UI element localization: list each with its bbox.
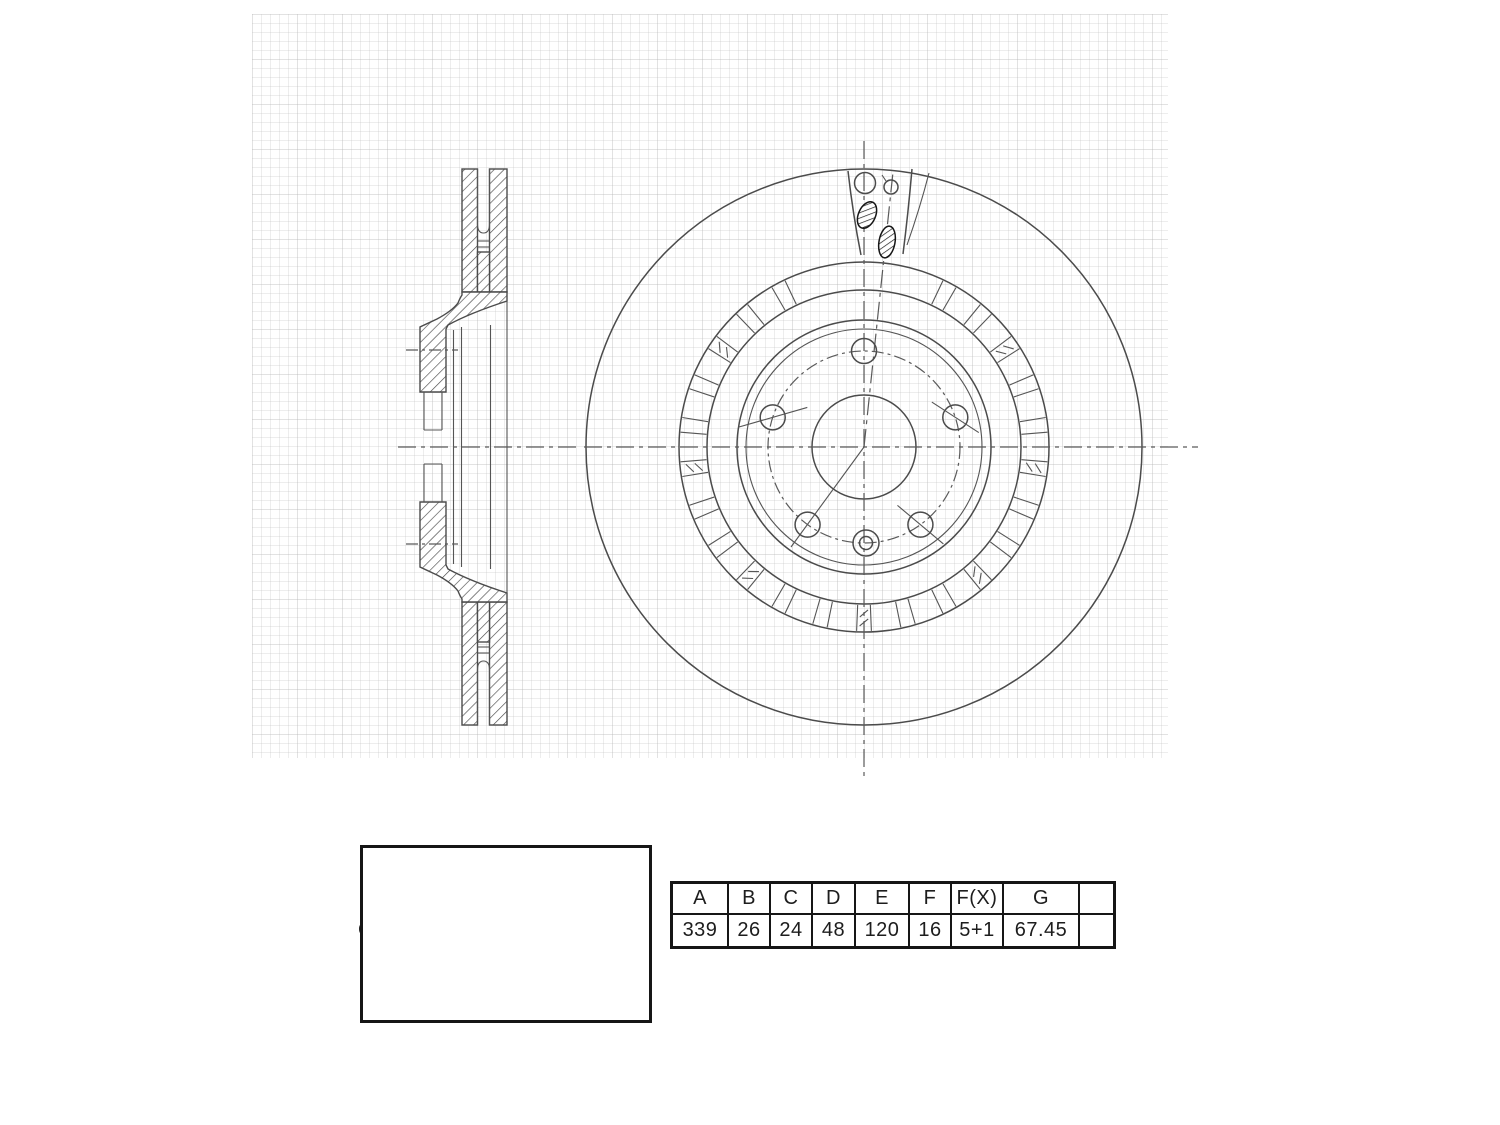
spec-value-g: 67.45 [1004, 915, 1080, 946]
spec-header-empty [1080, 884, 1113, 915]
spec-value-fx: 5+1 [952, 915, 1004, 946]
spec-header-fx: F(X) [952, 884, 1004, 915]
spec-value-c: 24 [771, 915, 813, 946]
front-view [584, 141, 1198, 778]
cross-section-view [398, 169, 578, 725]
spec-header-d: D [813, 884, 856, 915]
spec-table: A B C D E F F(X) G 339 26 24 48 120 16 5… [670, 881, 1116, 949]
spec-header-a: A [673, 884, 729, 915]
spec-value-empty [1080, 915, 1113, 946]
brake-rotor-figure: G A B C(MIN) D E F F(X) [0, 0, 1500, 1125]
wheel-bolt-holes [738, 339, 979, 544]
technical-drawing-page: G A B C(MIN) D E F F(X) A B C D E F F(X)… [0, 0, 1500, 1125]
spec-value-b: 26 [729, 915, 771, 946]
spec-header-e: E [856, 884, 910, 915]
spec-header-f: F [910, 884, 952, 915]
spec-value-f: 16 [910, 915, 952, 946]
spec-value-a: 339 [673, 915, 729, 946]
spec-header-g: G [1004, 884, 1080, 915]
spec-value-d: 48 [813, 915, 856, 946]
spec-header-b: B [729, 884, 771, 915]
spec-header-c: C [771, 884, 813, 915]
spec-value-e: 120 [856, 915, 910, 946]
dimension-key-box [360, 845, 652, 1023]
